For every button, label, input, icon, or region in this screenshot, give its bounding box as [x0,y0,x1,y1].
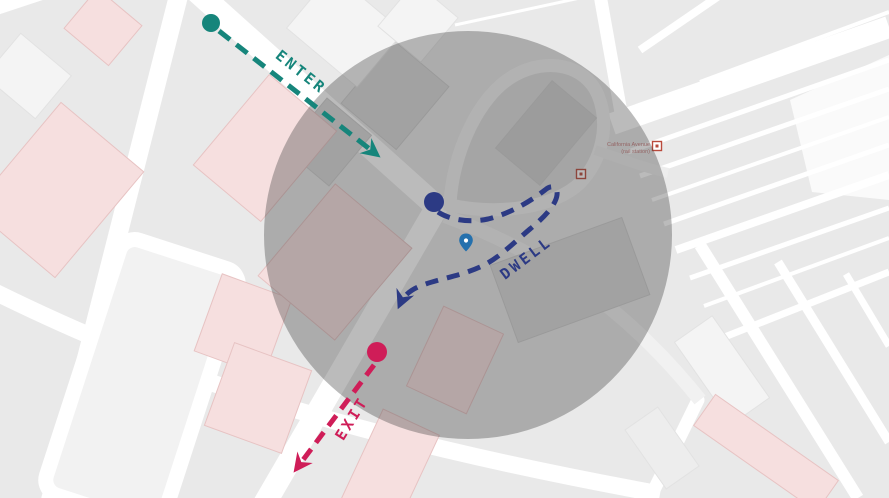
map-screenshot: California Avenue (rail station) ENTER D… [0,0,889,498]
map-canvas[interactable]: California Avenue (rail station) ENTER D… [0,0,889,498]
exit-point-marker[interactable] [367,342,387,362]
enter-point-marker[interactable] [202,14,220,32]
dwell-point-marker[interactable] [424,192,444,212]
pin-hole [464,238,468,242]
rail-station-icon[interactable] [653,142,662,151]
